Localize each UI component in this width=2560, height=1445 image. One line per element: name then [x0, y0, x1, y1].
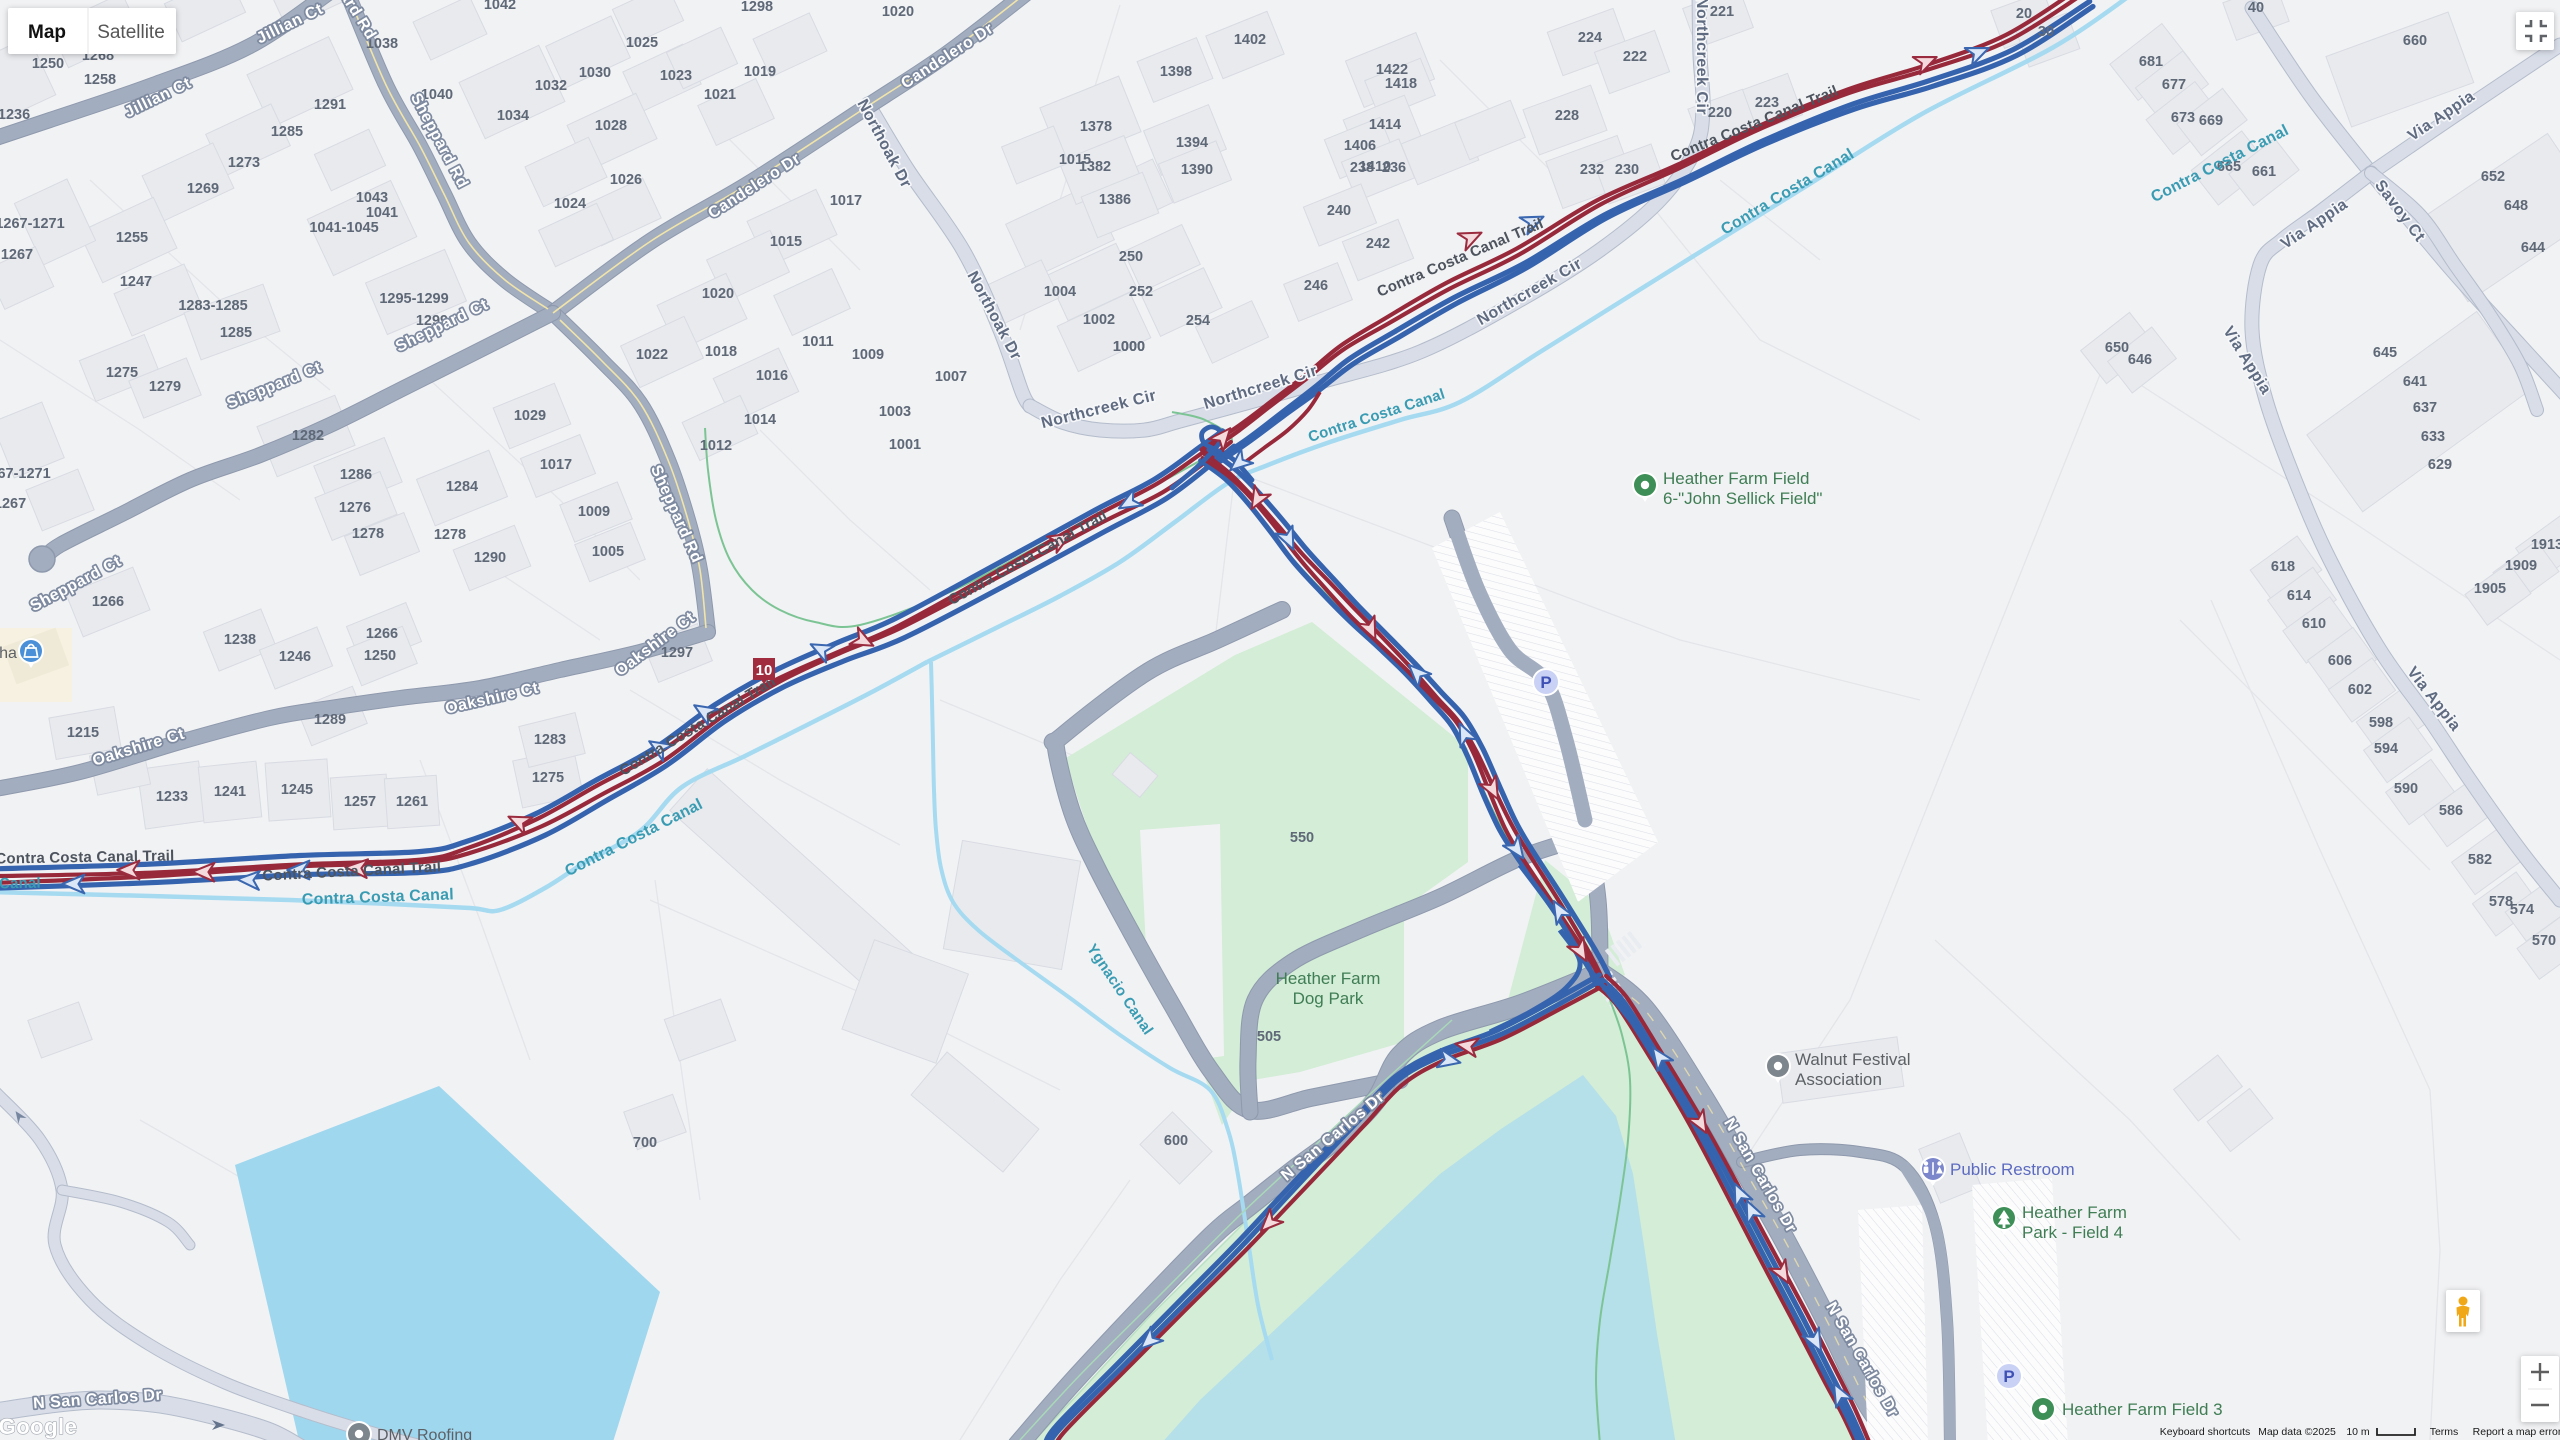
svg-text:1267: 1267 [1, 247, 33, 263]
svg-text:1267-1271: 1267-1271 [0, 466, 51, 482]
svg-text:238: 238 [1350, 160, 1374, 176]
svg-text:1250: 1250 [32, 56, 64, 72]
svg-text:1024: 1024 [554, 196, 586, 212]
svg-text:594: 594 [2374, 741, 2398, 757]
svg-text:1018: 1018 [705, 344, 737, 360]
svg-text:505: 505 [1257, 1029, 1281, 1045]
svg-text:1247: 1247 [120, 274, 152, 290]
svg-text:1267: 1267 [0, 496, 26, 512]
svg-text:582: 582 [2468, 852, 2492, 868]
svg-text:10: 10 [756, 662, 773, 679]
svg-text:1032: 1032 [535, 78, 567, 94]
svg-text:250: 250 [1119, 249, 1143, 265]
svg-text:1276: 1276 [339, 500, 371, 516]
svg-text:1238: 1238 [224, 632, 256, 648]
svg-text:1406: 1406 [1344, 138, 1376, 154]
svg-text:Walnut Festival: Walnut Festival [1795, 1050, 1911, 1069]
svg-text:1290: 1290 [474, 550, 506, 566]
svg-text:1269: 1269 [187, 181, 219, 197]
svg-text:1025: 1025 [626, 35, 658, 51]
svg-text:1279: 1279 [149, 379, 181, 395]
svg-text:1233: 1233 [156, 789, 188, 805]
svg-text:1000: 1000 [1113, 339, 1145, 355]
svg-text:1042: 1042 [484, 0, 516, 13]
svg-text:1283-1285: 1283-1285 [178, 298, 247, 314]
svg-text:6-"John Sellick Field": 6-"John Sellick Field" [1663, 489, 1822, 508]
svg-text:1297: 1297 [661, 645, 693, 661]
svg-text:Heather Farm: Heather Farm [2022, 1203, 2127, 1222]
svg-text:1015: 1015 [1059, 152, 1091, 168]
svg-text:1029: 1029 [514, 408, 546, 424]
svg-text:1011: 1011 [802, 334, 833, 350]
svg-text:Map: Map [28, 22, 66, 43]
svg-text:1298: 1298 [741, 0, 773, 15]
svg-text:1250: 1250 [364, 648, 396, 664]
svg-text:230: 230 [1615, 162, 1639, 178]
svg-text:660: 660 [2403, 33, 2427, 49]
svg-text:1255: 1255 [116, 230, 148, 246]
svg-text:1275: 1275 [532, 770, 564, 786]
svg-text:P: P [1540, 673, 1551, 692]
svg-text:1009: 1009 [852, 347, 884, 363]
svg-text:1020: 1020 [702, 286, 734, 302]
svg-text:600: 600 [1164, 1133, 1188, 1149]
svg-text:1289: 1289 [314, 712, 346, 728]
svg-text:Public Restroom: Public Restroom [1950, 1160, 2075, 1179]
svg-text:Heather Farm Field: Heather Farm Field [1663, 469, 1809, 488]
svg-text:1016: 1016 [756, 368, 788, 384]
svg-text:637: 637 [2413, 400, 2437, 416]
svg-text:618: 618 [2271, 559, 2295, 575]
svg-text:1004: 1004 [1044, 284, 1076, 300]
svg-text:1245: 1245 [281, 782, 313, 798]
svg-text:1394: 1394 [1176, 135, 1208, 151]
svg-text:1034: 1034 [497, 108, 529, 124]
svg-text:1261: 1261 [396, 794, 428, 810]
svg-text:Dog Park: Dog Park [1293, 989, 1364, 1008]
svg-text:Park - Field 4: Park - Field 4 [2022, 1223, 2123, 1242]
svg-text:629: 629 [2428, 457, 2452, 473]
svg-text:606: 606 [2328, 653, 2352, 669]
svg-text:1284: 1284 [446, 479, 478, 495]
svg-text:1286: 1286 [340, 467, 372, 483]
svg-text:550: 550 [1290, 830, 1314, 846]
svg-text:1295-1299: 1295-1299 [379, 291, 448, 307]
svg-text:1017: 1017 [830, 193, 862, 209]
svg-text:1236: 1236 [0, 107, 30, 123]
svg-text:Map data ©2025: Map data ©2025 [2258, 1426, 2336, 1438]
svg-text:30: 30 [2038, 24, 2054, 40]
svg-text:1909: 1909 [2505, 558, 2537, 574]
svg-text:Association: Association [1795, 1070, 1882, 1089]
svg-text:228: 228 [1555, 108, 1579, 124]
svg-text:1026: 1026 [610, 172, 642, 188]
svg-text:645: 645 [2373, 345, 2397, 361]
svg-text:236: 236 [1382, 160, 1406, 176]
svg-text:Contra Costa Canal Trail: Contra Costa Canal Trail [0, 847, 175, 867]
svg-text:1019: 1019 [744, 64, 776, 80]
svg-text:614: 614 [2287, 588, 2311, 604]
svg-text:1023: 1023 [660, 68, 692, 84]
svg-text:20: 20 [2016, 6, 2032, 22]
svg-text:1007: 1007 [935, 369, 967, 385]
svg-text:224: 224 [1578, 30, 1602, 46]
svg-text:1257: 1257 [344, 794, 376, 810]
svg-text:1291: 1291 [314, 97, 346, 113]
svg-text:1022: 1022 [636, 347, 668, 363]
svg-text:574: 574 [2510, 902, 2534, 918]
svg-text:P: P [2003, 1367, 2014, 1386]
svg-text:1414: 1414 [1369, 117, 1401, 133]
svg-text:DMV Roofing: DMV Roofing [377, 1427, 472, 1440]
svg-text:1905: 1905 [2474, 581, 2506, 597]
svg-text:1283: 1283 [534, 732, 566, 748]
svg-text:590: 590 [2394, 781, 2418, 797]
svg-text:1267-1271: 1267-1271 [0, 216, 65, 232]
svg-text:1020: 1020 [882, 4, 914, 20]
svg-text:586: 586 [2439, 803, 2463, 819]
svg-text:Canal: Canal [0, 875, 41, 893]
svg-text:Google: Google [0, 1414, 77, 1439]
svg-text:661: 661 [2252, 164, 2276, 180]
svg-text:242: 242 [1366, 236, 1390, 252]
svg-text:232: 232 [1580, 162, 1604, 178]
svg-text:221: 221 [1710, 4, 1734, 20]
svg-text:ha: ha [0, 645, 17, 662]
svg-text:Northcreek Cir: Northcreek Cir [1693, 0, 1710, 115]
svg-text:673: 673 [2171, 110, 2195, 126]
svg-text:246: 246 [1304, 278, 1328, 294]
svg-text:602: 602 [2348, 682, 2372, 698]
svg-text:700: 700 [633, 1135, 657, 1151]
svg-text:222: 222 [1623, 49, 1647, 65]
svg-text:240: 240 [1327, 203, 1351, 219]
svg-text:633: 633 [2421, 429, 2445, 445]
svg-text:677: 677 [2162, 77, 2186, 93]
svg-text:1398: 1398 [1160, 64, 1192, 80]
svg-text:1282: 1282 [292, 428, 324, 444]
svg-text:1278: 1278 [352, 526, 384, 542]
svg-text:254: 254 [1186, 313, 1210, 329]
svg-text:Heather Farm Field 3: Heather Farm Field 3 [2062, 1400, 2223, 1419]
svg-text:1913: 1913 [2531, 537, 2560, 553]
svg-text:570: 570 [2532, 933, 2556, 949]
svg-text:1003: 1003 [879, 404, 911, 420]
svg-text:1015: 1015 [770, 234, 802, 250]
svg-text:1043: 1043 [356, 190, 388, 206]
svg-text:1017: 1017 [540, 457, 572, 473]
svg-text:1266: 1266 [92, 594, 124, 610]
svg-text:1285: 1285 [220, 325, 252, 341]
svg-text:252: 252 [1129, 284, 1153, 300]
svg-text:681: 681 [2139, 54, 2163, 70]
svg-text:1418: 1418 [1385, 76, 1417, 92]
svg-text:1241: 1241 [214, 784, 246, 800]
svg-text:1266: 1266 [366, 626, 398, 642]
svg-text:1041-1045: 1041-1045 [309, 220, 378, 236]
svg-text:641: 641 [2403, 374, 2427, 390]
svg-text:1273: 1273 [228, 155, 260, 171]
svg-text:40: 40 [2248, 0, 2264, 16]
svg-text:1278: 1278 [434, 527, 466, 543]
svg-text:610: 610 [2302, 616, 2326, 632]
svg-text:1386: 1386 [1099, 192, 1131, 208]
svg-text:650: 650 [2105, 340, 2129, 356]
svg-text:Satellite: Satellite [97, 22, 165, 43]
svg-text:669: 669 [2199, 113, 2223, 129]
svg-text:220: 220 [1708, 105, 1732, 121]
svg-text:652: 652 [2481, 169, 2505, 185]
svg-text:1378: 1378 [1080, 119, 1112, 135]
svg-text:1215: 1215 [67, 725, 99, 741]
svg-text:Report a map error: Report a map error [2473, 1426, 2560, 1438]
svg-text:1030: 1030 [579, 65, 611, 81]
svg-text:644: 644 [2521, 240, 2545, 256]
svg-text:Heather Farm: Heather Farm [1276, 969, 1381, 988]
svg-text:1021: 1021 [704, 87, 736, 103]
svg-text:1390: 1390 [1181, 162, 1213, 178]
svg-text:1246: 1246 [279, 649, 311, 665]
svg-text:Terms: Terms [2430, 1426, 2459, 1438]
svg-text:598: 598 [2369, 715, 2393, 731]
svg-text:1402: 1402 [1234, 32, 1266, 48]
svg-text:1275: 1275 [106, 365, 138, 381]
svg-text:1014: 1014 [744, 412, 776, 428]
svg-text:Keyboard shortcuts: Keyboard shortcuts [2160, 1426, 2250, 1438]
svg-text:1005: 1005 [592, 544, 624, 560]
svg-text:1012: 1012 [700, 438, 732, 454]
svg-text:1285: 1285 [271, 124, 303, 140]
svg-text:1009: 1009 [578, 504, 610, 520]
svg-text:1002: 1002 [1083, 312, 1115, 328]
svg-text:1041: 1041 [366, 205, 398, 221]
svg-text:1258: 1258 [84, 72, 116, 88]
svg-text:1001: 1001 [889, 437, 921, 453]
svg-text:10 m: 10 m [2346, 1426, 2370, 1438]
svg-text:1028: 1028 [595, 118, 627, 134]
svg-text:646: 646 [2128, 352, 2152, 368]
svg-text:648: 648 [2504, 198, 2528, 214]
